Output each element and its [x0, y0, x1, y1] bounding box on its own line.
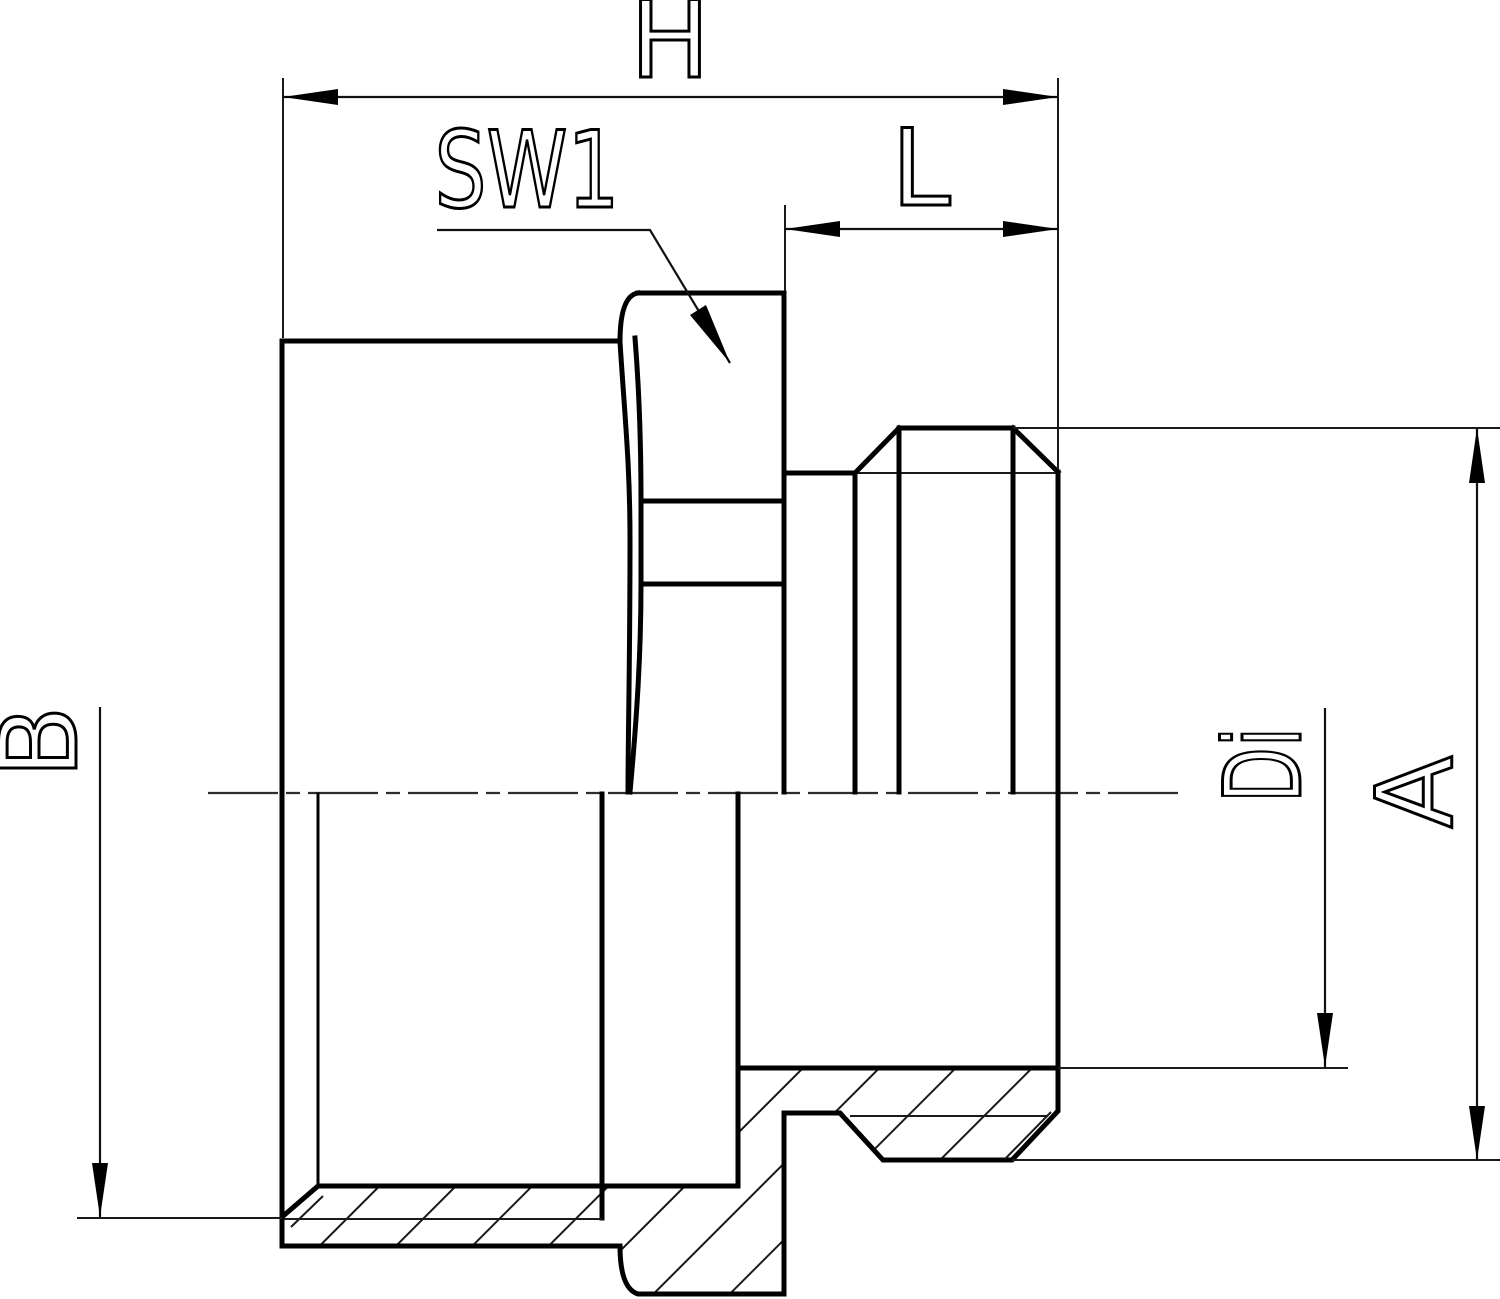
- dim-label-sw1: SW1: [435, 109, 620, 232]
- dim-label-a: A: [1354, 756, 1477, 829]
- fitting-section-drawing: H L SW1 B Di A: [0, 0, 1500, 1299]
- dim-label-di: Di: [1202, 727, 1325, 803]
- dim-label-l: L: [891, 107, 950, 230]
- technical-drawing-page: H L SW1 B Di A: [0, 0, 1500, 1299]
- dim-label-b: B: [0, 706, 101, 779]
- dim-label-h: H: [630, 0, 710, 102]
